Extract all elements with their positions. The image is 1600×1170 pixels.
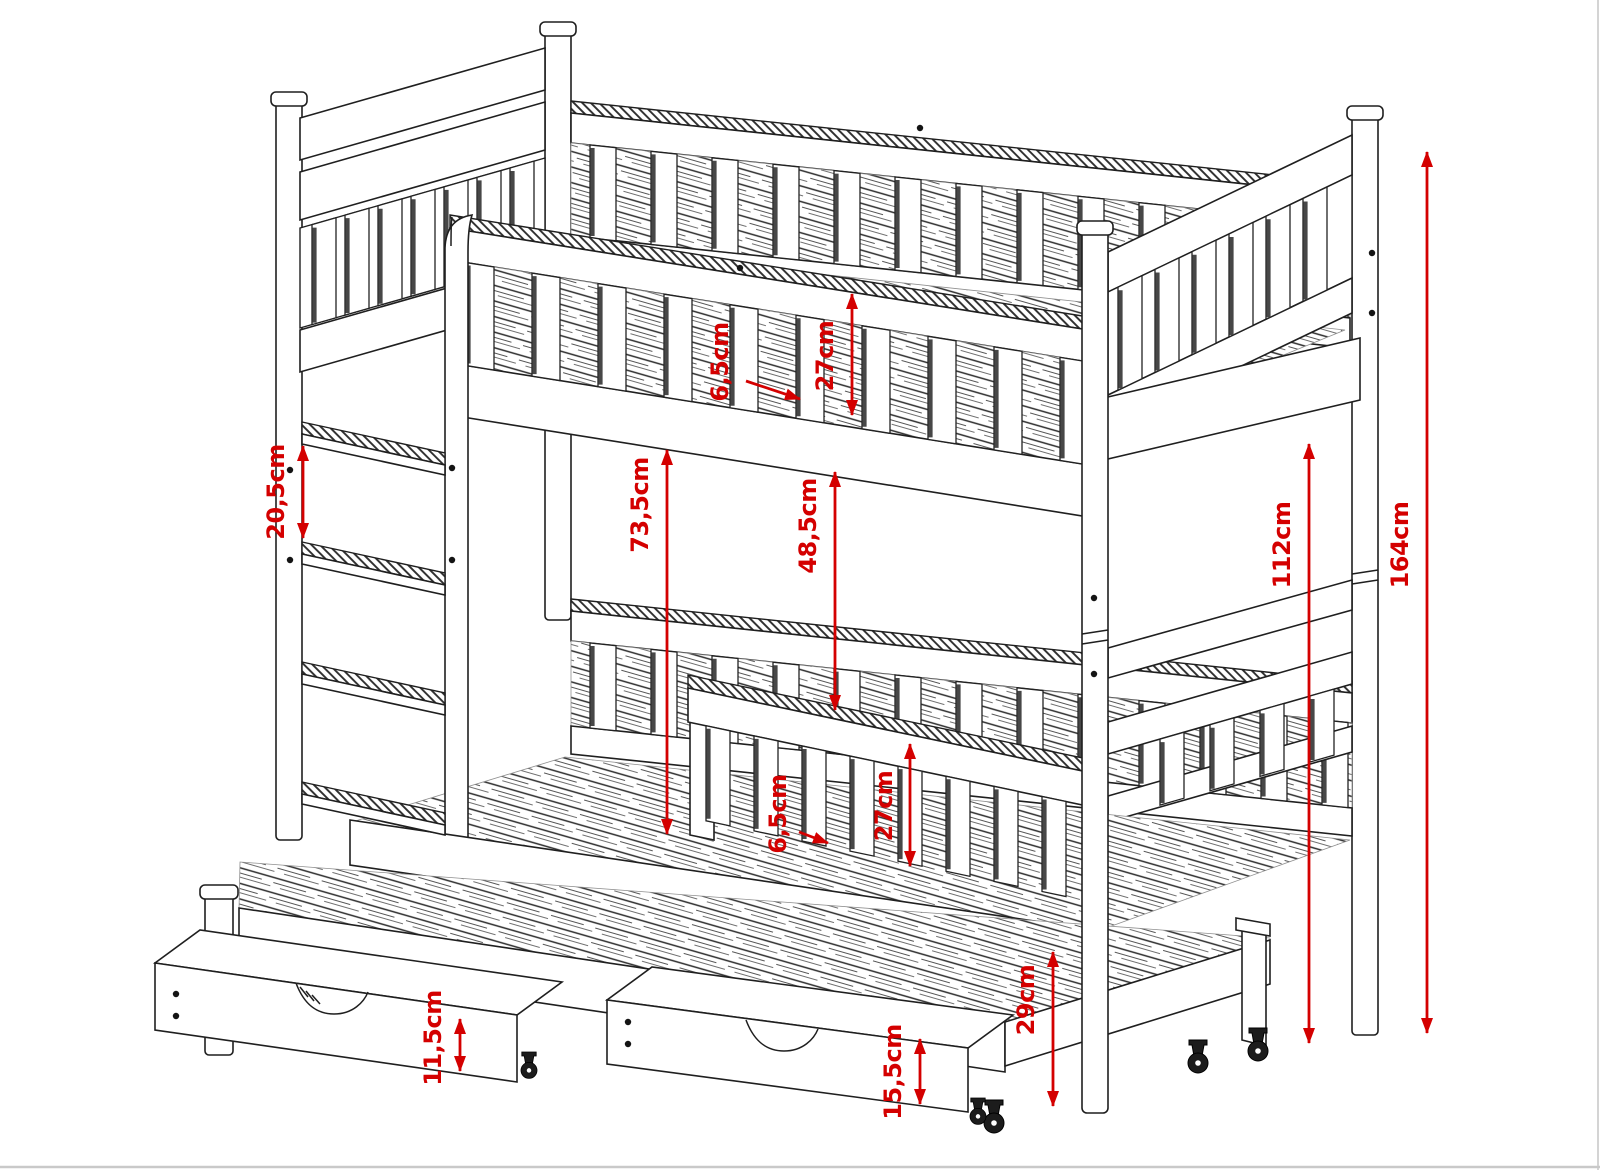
caster-wheel [1248,1028,1268,1061]
dimension-label: 48,5cm [794,478,822,573]
dimension-label: 27cm [870,771,898,842]
dimension-label: 164cm [1386,502,1414,589]
dimension-label: 112cm [1268,502,1296,589]
caster-wheel [984,1100,1004,1133]
dimension-label: 29cm [1012,965,1040,1036]
post-cap [540,22,576,36]
screw-dot [625,1019,631,1025]
screw-dot [917,125,923,131]
bunk-bed-technical-drawing: 6,5cm27cm20,5cm73,5cm48,5cm112cm164cm6,5… [0,0,1600,1170]
caster-wheel [521,1052,537,1078]
screw-dot [1091,595,1097,601]
footboard-front-post-group [1077,221,1113,1113]
ladder [302,422,445,835]
screw-dot [287,557,293,563]
dimension-label: 73,5cm [626,457,654,552]
caster-hub [527,1068,531,1072]
caster-hub [1255,1048,1261,1054]
screw-dot [1091,671,1097,677]
dimension-label: 15,5cm [879,1024,907,1119]
screw-dot [173,1013,179,1019]
screw-dot [1369,250,1375,256]
ladder-right-rail [445,215,472,865]
post-cap [200,885,238,899]
dimension-label: 6,5cm [706,322,734,401]
post-cap [1347,106,1383,120]
screw-dot [449,465,455,471]
caster-wheel [970,1098,986,1124]
post-cap [1077,221,1113,235]
screw-dot [1369,310,1375,316]
dimension-label: 20,5cm [262,444,290,539]
caster-wheel [1188,1040,1208,1073]
rail-board [1236,918,1270,936]
screw-dot [625,1041,631,1047]
caster-hub [976,1114,980,1118]
diagram-canvas: 6,5cm27cm20,5cm73,5cm48,5cm112cm164cm6,5… [0,0,1600,1170]
caster-hub [991,1120,997,1126]
screw-dot [449,557,455,563]
post-cap [271,92,307,106]
dimension-label: 11,5cm [419,990,447,1085]
dimension-label: 6,5cm [764,774,792,853]
screw-dot [737,265,743,271]
dimension-label: 27cm [811,321,839,392]
screw-dot [173,991,179,997]
caster-hub [1195,1060,1201,1066]
